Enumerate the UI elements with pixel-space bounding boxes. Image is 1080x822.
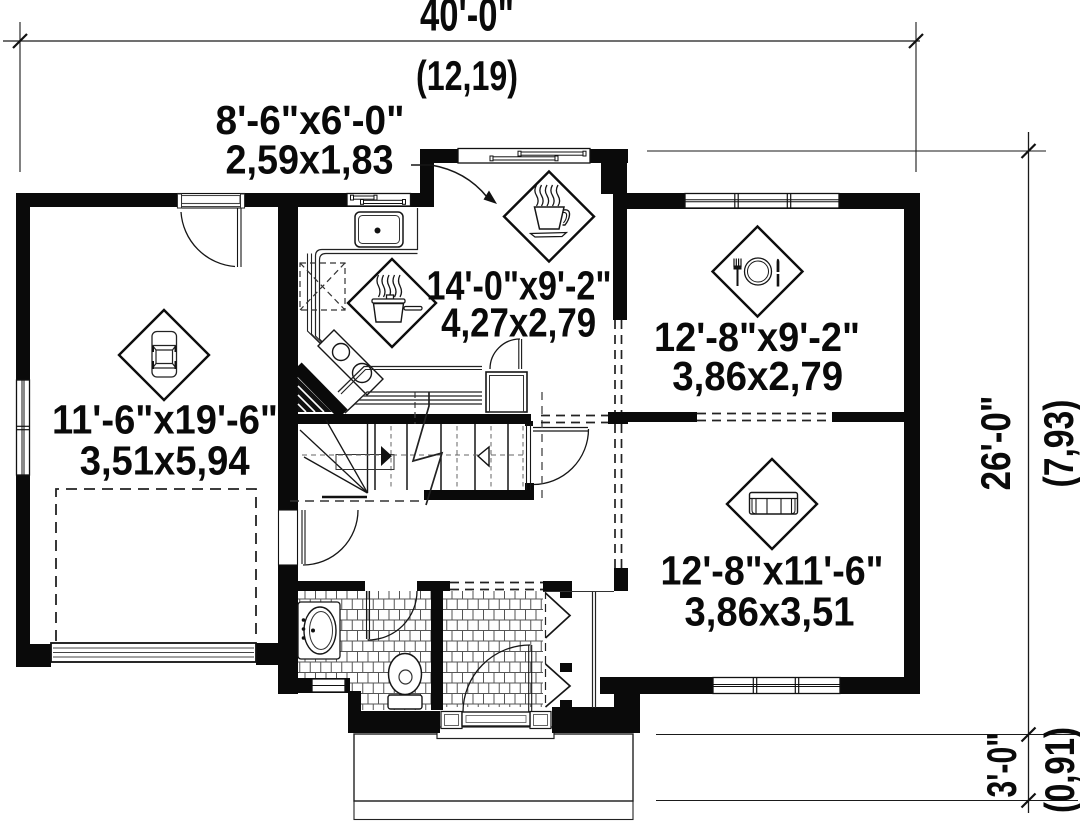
svg-text:40'-0": 40'-0" xyxy=(420,0,514,41)
svg-text:26'-0": 26'-0" xyxy=(972,396,1019,491)
svg-text:(0,91): (0,91) xyxy=(1036,727,1080,813)
svg-text:3'-0": 3'-0" xyxy=(978,733,1025,798)
svg-text:2,59x1,83: 2,59x1,83 xyxy=(226,137,394,183)
svg-text:(12,19): (12,19) xyxy=(416,52,518,99)
svg-text:4,27x2,79: 4,27x2,79 xyxy=(441,300,596,346)
svg-text:3,86x3,51: 3,86x3,51 xyxy=(685,589,855,635)
svg-text:12'-8"x11'-6": 12'-8"x11'-6" xyxy=(661,548,884,594)
svg-text:3,51x5,94: 3,51x5,94 xyxy=(80,438,250,484)
svg-text:(7,93): (7,93) xyxy=(1035,400,1080,488)
svg-text:11'-6"x19'-6": 11'-6"x19'-6" xyxy=(52,397,278,443)
svg-text:3,86x2,79: 3,86x2,79 xyxy=(672,353,843,399)
